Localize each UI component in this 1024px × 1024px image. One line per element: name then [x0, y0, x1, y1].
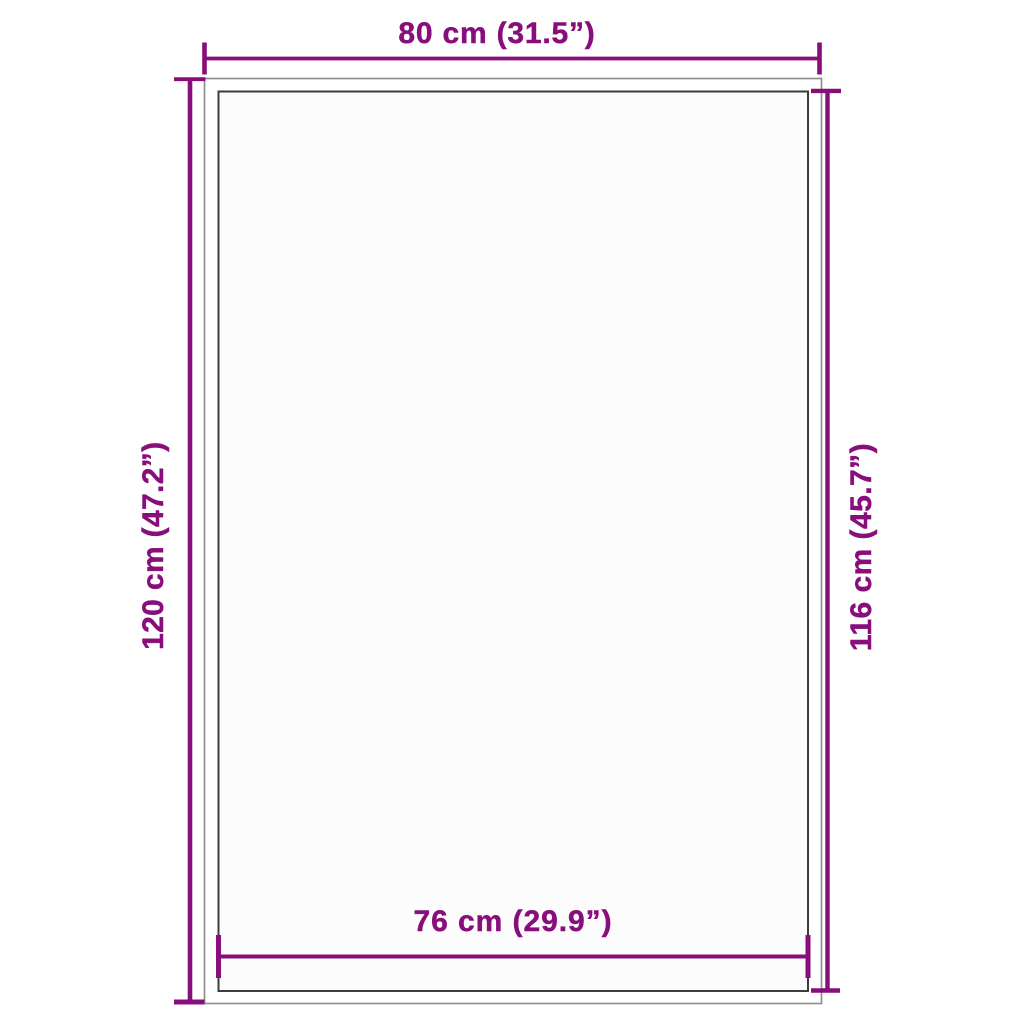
svg-text:76 cm (29.9”): 76 cm (29.9”): [413, 905, 612, 938]
svg-text:120 cm (47.2”): 120 cm (47.2”): [137, 442, 170, 650]
svg-text:80 cm (31.5”): 80 cm (31.5”): [398, 17, 595, 50]
svg-text:116 cm (45.7”): 116 cm (45.7”): [845, 443, 878, 651]
